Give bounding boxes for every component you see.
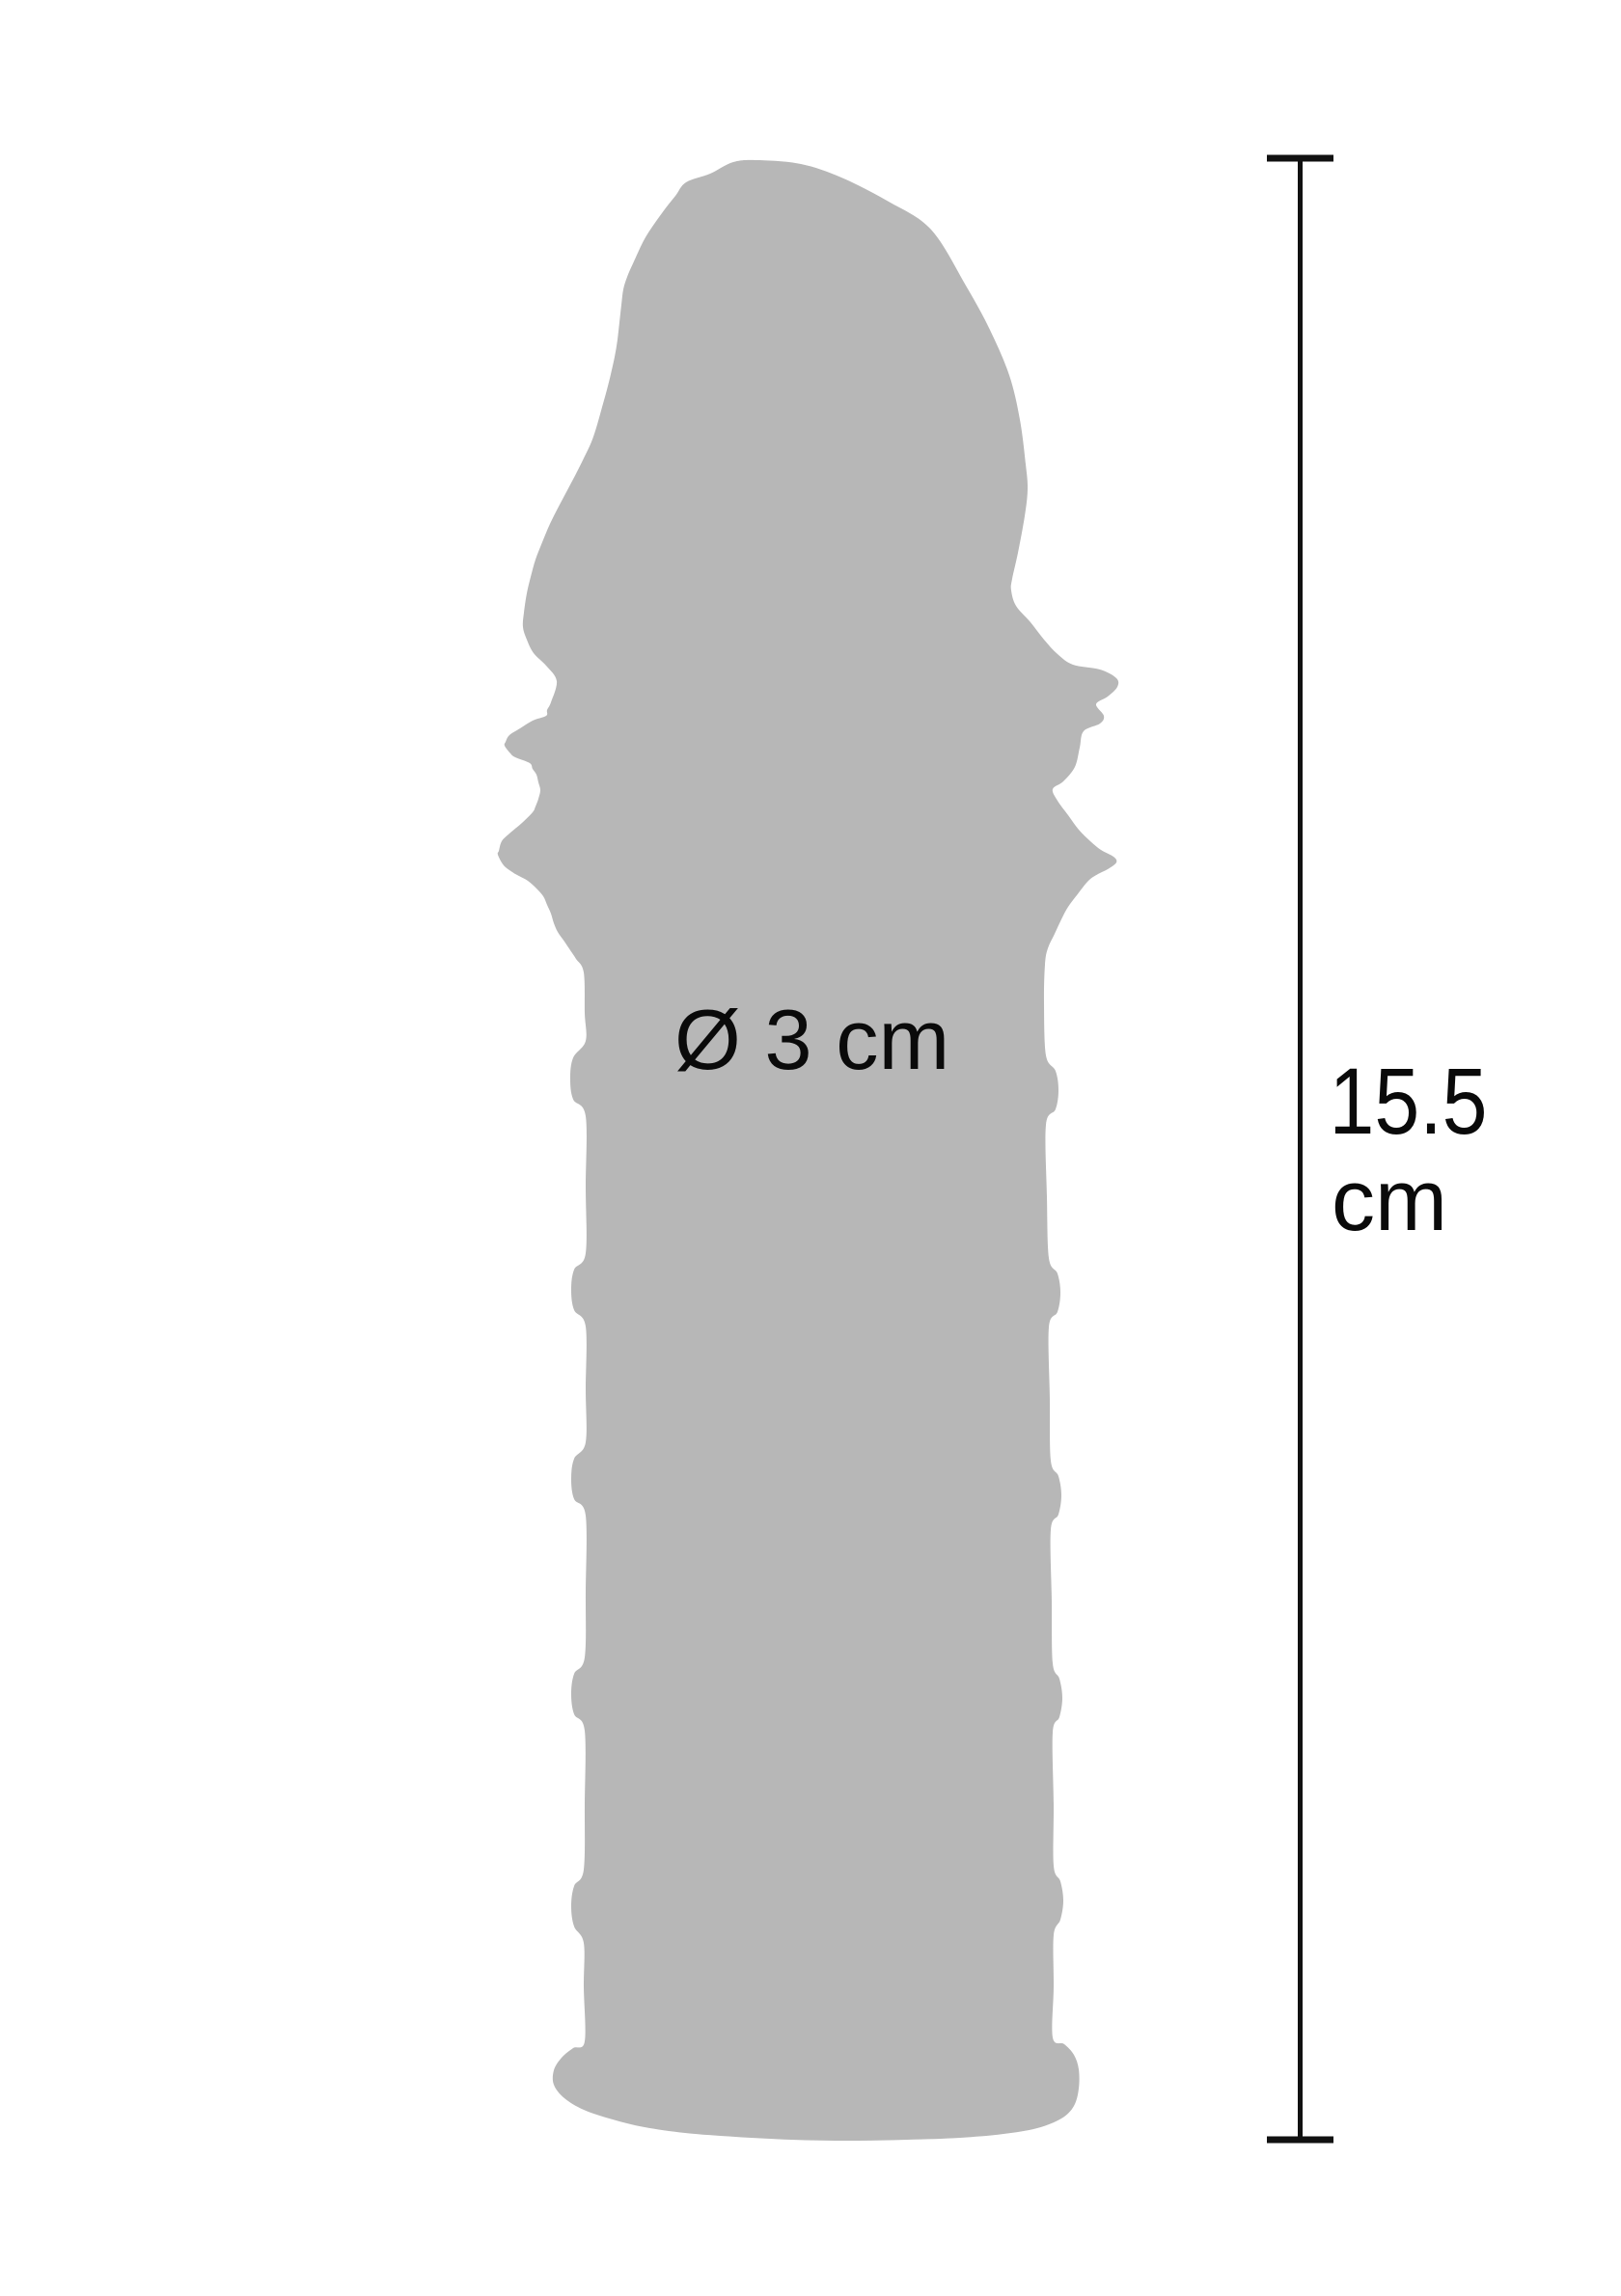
svg-text:cm: cm <box>1332 1153 1447 1249</box>
svg-text:15.5: 15.5 <box>1330 1049 1488 1154</box>
svg-text:Ø 3 cm: Ø 3 cm <box>674 992 949 1087</box>
